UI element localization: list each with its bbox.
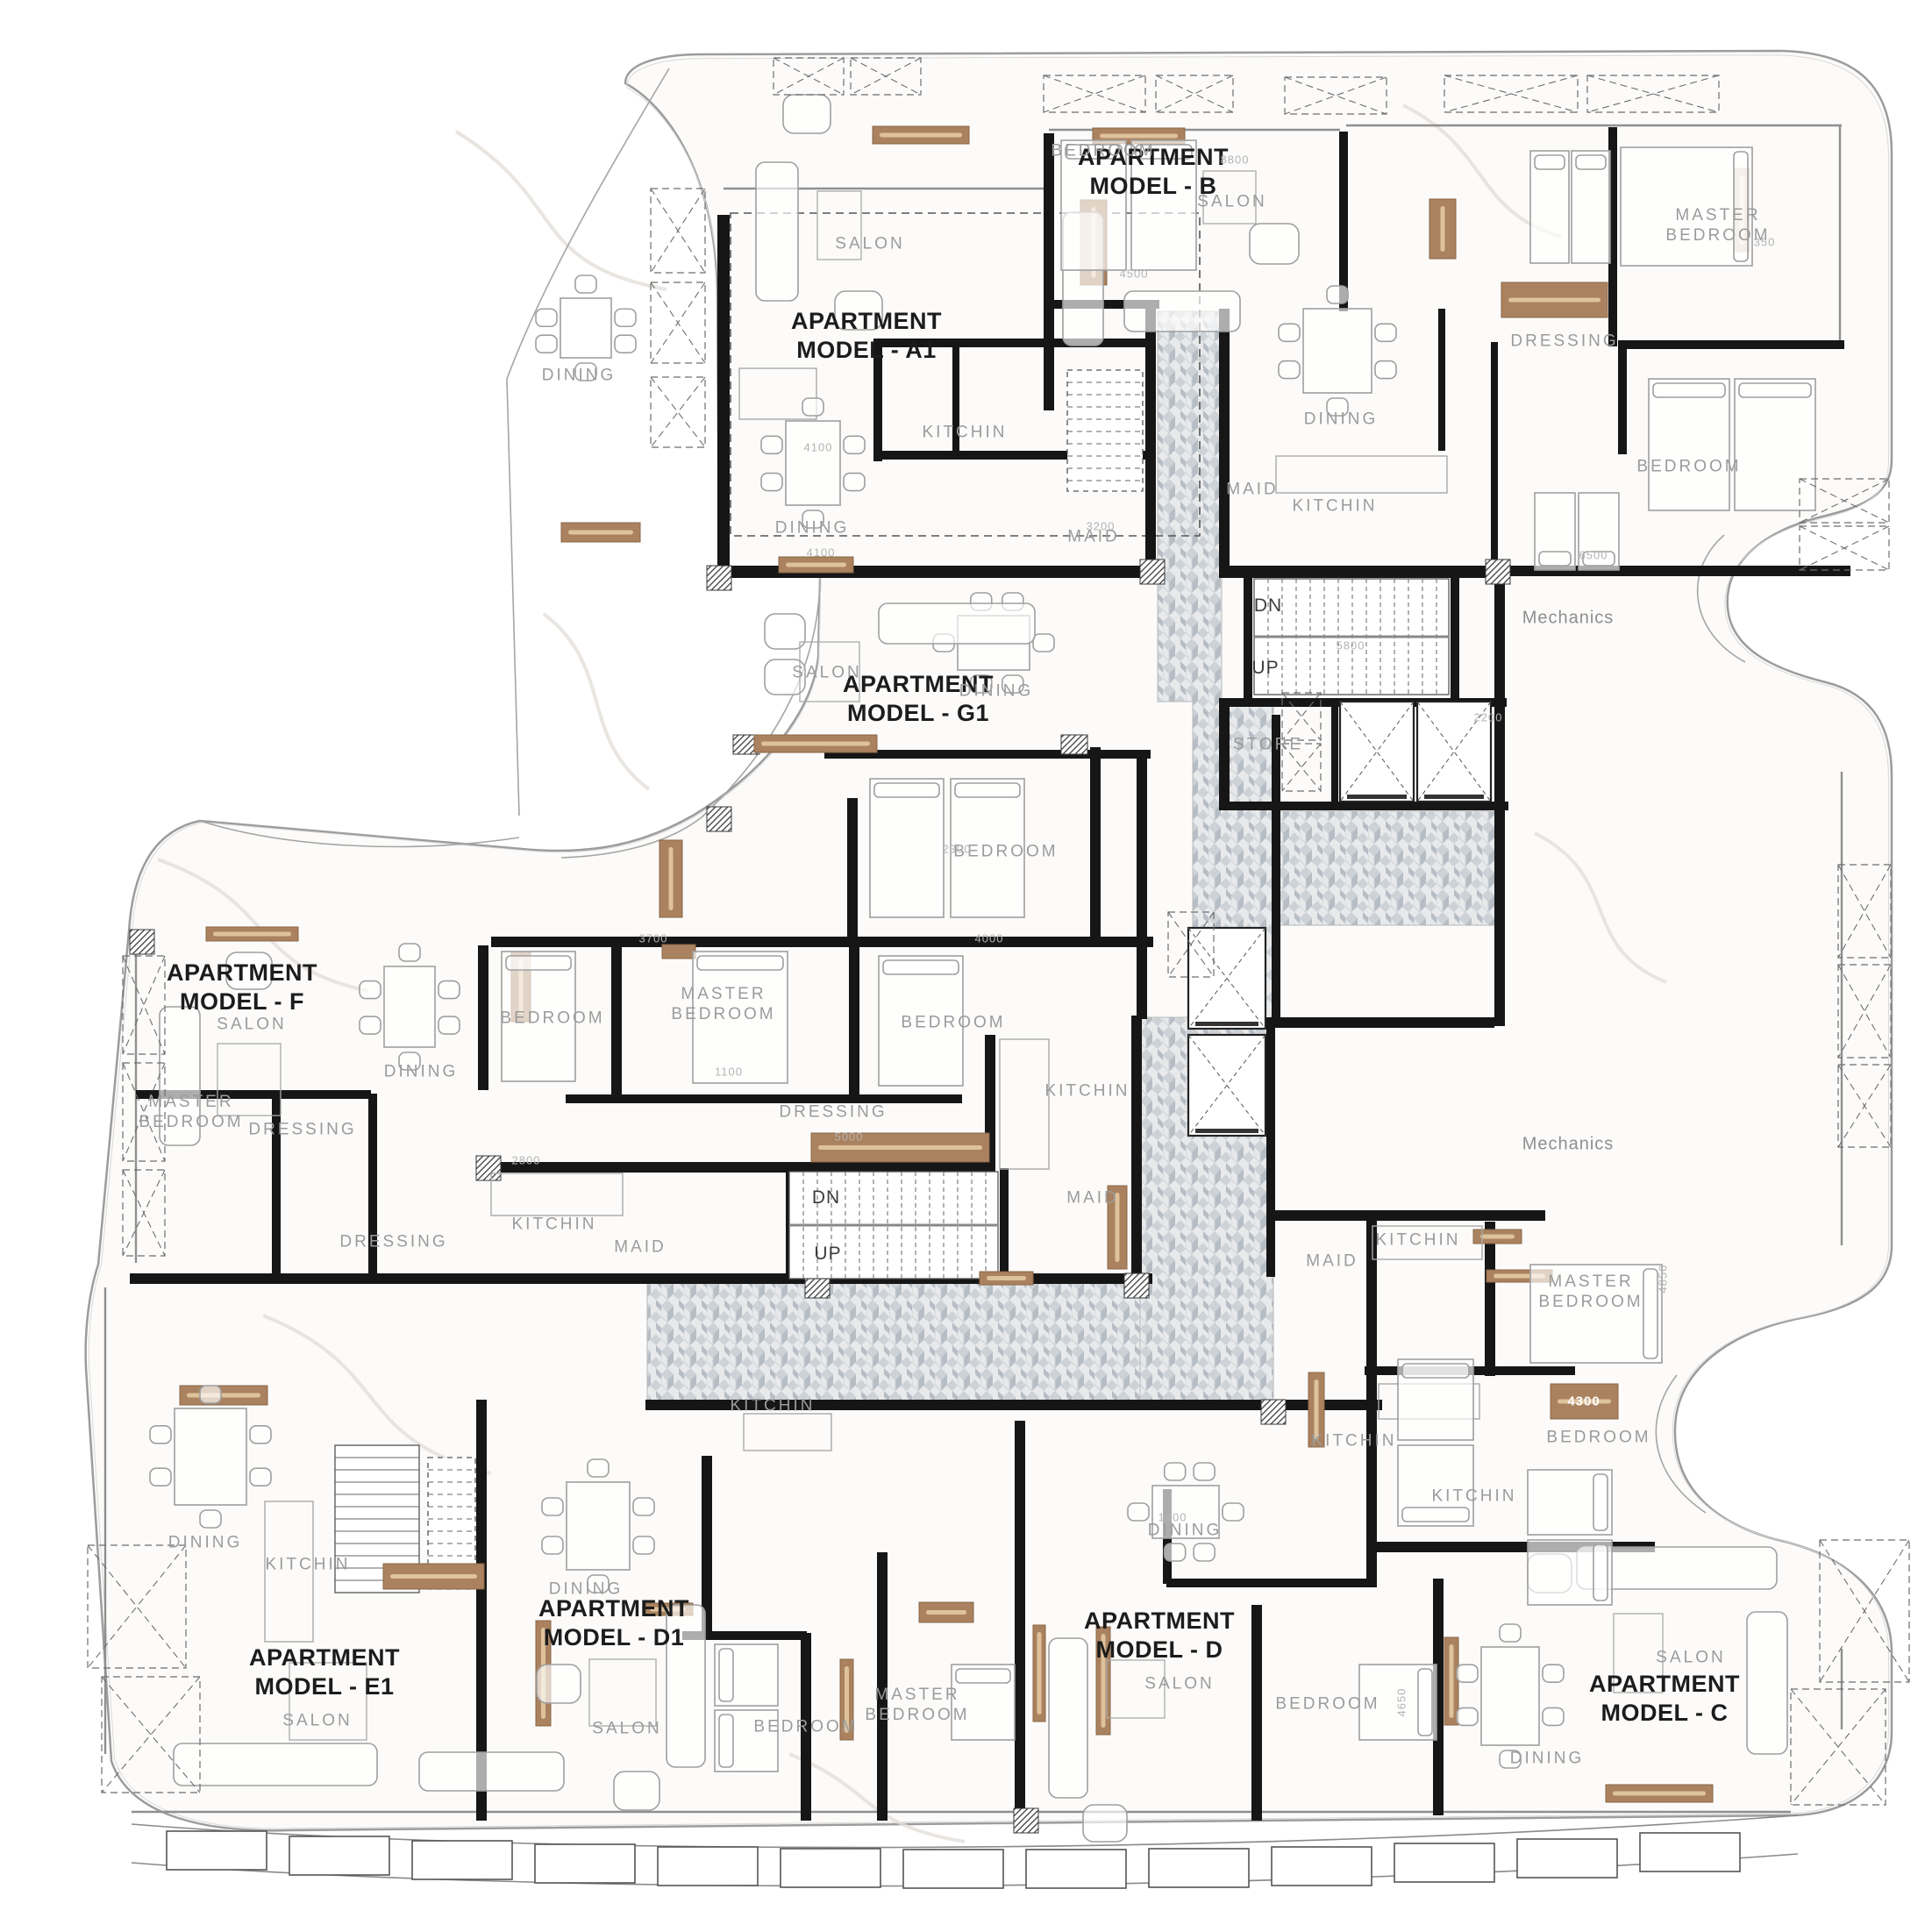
floor-plan-drawing: [0, 0, 1932, 1932]
floor-plan: APARTMENT MODEL - A1APARTMENT MODEL - BA…: [0, 0, 1932, 1932]
